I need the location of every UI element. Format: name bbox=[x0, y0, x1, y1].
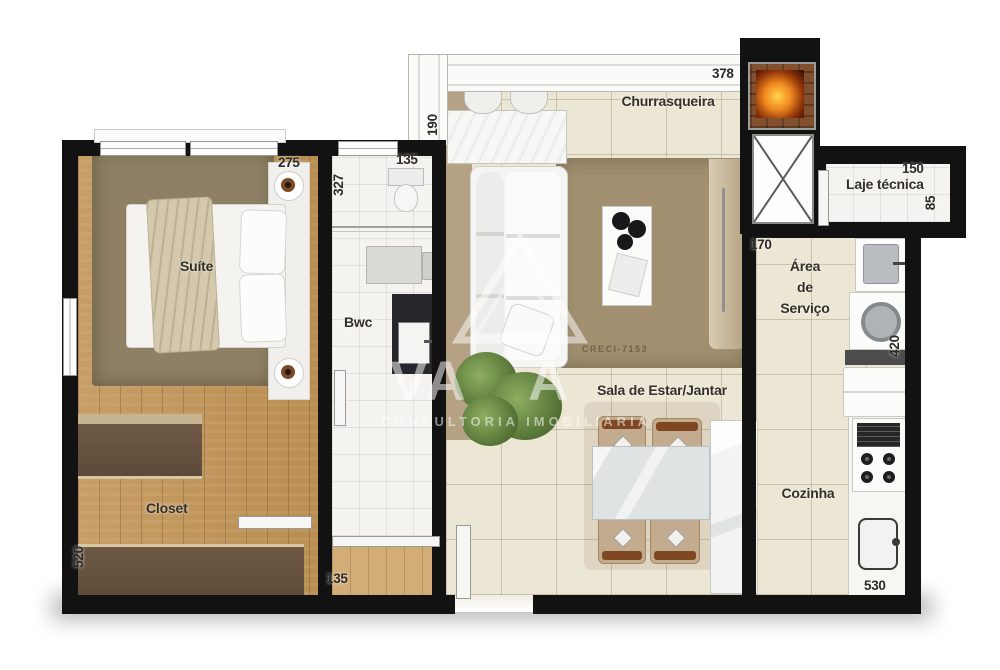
wall-bottom-right bbox=[533, 595, 921, 614]
duct-shaft bbox=[752, 134, 814, 224]
burner-icon bbox=[883, 453, 895, 465]
shower-bench bbox=[366, 246, 422, 284]
wall-laje-top bbox=[814, 146, 966, 164]
balcony-rail bbox=[408, 54, 746, 92]
stove-grill bbox=[857, 423, 900, 447]
room-label-laje: Laje técnica bbox=[846, 176, 924, 192]
bed-blanket bbox=[146, 196, 220, 353]
dim-bwc-depth: 327 bbox=[331, 163, 345, 207]
wardrobe bbox=[76, 544, 304, 599]
window bbox=[190, 141, 278, 156]
entry-hall-floor bbox=[332, 545, 438, 595]
table-decor bbox=[628, 220, 646, 238]
floor-plan: Suíte Bwc Closet Churrasqueira Laje técn… bbox=[0, 0, 1000, 670]
window bbox=[338, 141, 398, 156]
faucet-icon bbox=[892, 538, 900, 546]
wall-bottom-left bbox=[62, 595, 455, 614]
fire-icon bbox=[756, 70, 804, 118]
servico-line3: Serviço bbox=[762, 298, 848, 319]
watermark-logo-icon bbox=[452, 234, 588, 346]
room-label-suite: Suíte bbox=[180, 258, 213, 274]
door-leaf-closet bbox=[238, 516, 312, 529]
servico-line1: Área bbox=[762, 256, 848, 277]
pillow bbox=[239, 209, 287, 275]
cabinet-handle-icon bbox=[722, 188, 725, 312]
lamp-icon bbox=[285, 369, 291, 375]
watermark-word-start: VA bbox=[390, 348, 468, 413]
wall-laje-right bbox=[950, 146, 966, 238]
wall-suite-bwc bbox=[318, 140, 332, 610]
wall-right-main bbox=[905, 236, 921, 614]
watermark-word-end: A bbox=[528, 348, 568, 413]
burner-icon bbox=[883, 471, 895, 483]
dining-table bbox=[592, 446, 710, 520]
watermark-subtitle: CONSULTORIA IMOBILIÁRIA bbox=[338, 414, 694, 429]
hall-threshold bbox=[332, 536, 440, 547]
burner-icon bbox=[861, 453, 873, 465]
window bbox=[63, 298, 77, 376]
wall-sala-servico bbox=[742, 232, 756, 595]
refrigerator bbox=[843, 367, 907, 417]
wall-laje-left-stub bbox=[814, 146, 826, 172]
bar-counter bbox=[447, 110, 567, 164]
room-label-bwc: Bwc bbox=[344, 314, 372, 330]
dim-hall-width: 135 bbox=[326, 571, 348, 586]
dim-servico-width: 170 bbox=[750, 237, 772, 252]
wardrobe bbox=[76, 424, 202, 479]
servico-line2: de bbox=[762, 277, 848, 298]
door-leaf-entry bbox=[456, 525, 471, 599]
dim-sala-width: 378 bbox=[712, 66, 734, 81]
dim-laje-width: 150 bbox=[902, 161, 924, 176]
creci-text: CRECI-7153 bbox=[582, 344, 648, 354]
dim-servico-depth: 420 bbox=[887, 324, 901, 368]
room-label-churrasqueira: Churrasqueira bbox=[612, 93, 724, 109]
burner-icon bbox=[861, 471, 873, 483]
toilet bbox=[394, 184, 418, 212]
closet-shelf bbox=[76, 414, 202, 424]
table-decor bbox=[617, 234, 633, 250]
stove bbox=[852, 418, 907, 492]
dim-balcony-depth: 190 bbox=[425, 103, 439, 147]
room-label-sala: Sala de Estar/Jantar bbox=[592, 382, 732, 398]
door-leaf-laje bbox=[818, 170, 829, 226]
dim-closet-depth: 520 bbox=[71, 535, 85, 579]
dim-suite-width: 275 bbox=[278, 155, 300, 170]
window bbox=[100, 141, 186, 156]
room-label-cozinha: Cozinha bbox=[770, 485, 846, 501]
faucet-icon bbox=[893, 262, 905, 265]
shower-glass bbox=[332, 231, 432, 232]
room-label-servico: Área de Serviço bbox=[762, 256, 848, 319]
dim-laje-depth: 85 bbox=[923, 181, 937, 225]
lamp-icon bbox=[285, 182, 291, 188]
pillow bbox=[239, 273, 287, 343]
dim-bwc-width: 135 bbox=[396, 152, 418, 167]
dim-cozinha-depth: 530 bbox=[864, 578, 886, 593]
shower-glass bbox=[332, 226, 432, 228]
room-label-closet: Closet bbox=[146, 500, 188, 516]
